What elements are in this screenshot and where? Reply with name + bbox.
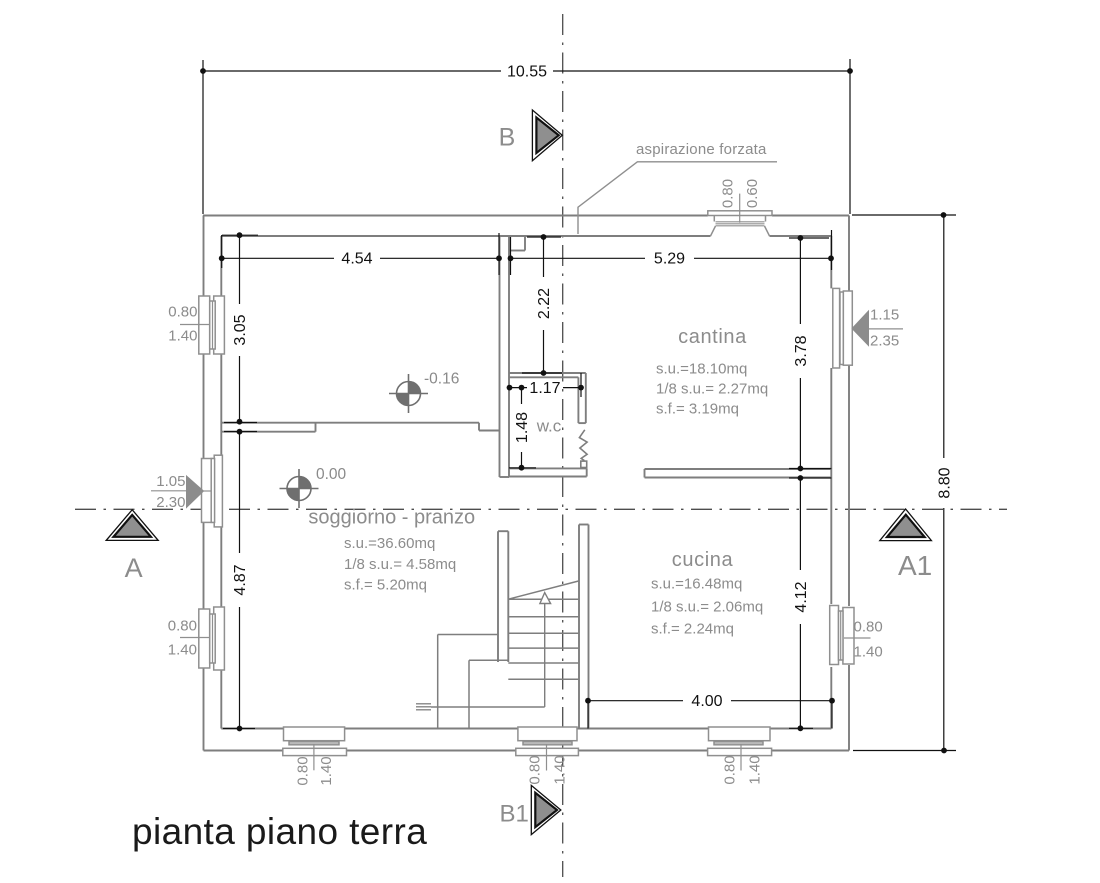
- svg-text:1.40: 1.40: [747, 755, 764, 784]
- svg-text:cucina: cucina: [672, 549, 734, 571]
- svg-text:10.55: 10.55: [507, 63, 547, 80]
- svg-text:4.00: 4.00: [691, 693, 722, 710]
- svg-text:1/8 s.u.= 2.27mq: 1/8 s.u.= 2.27mq: [656, 381, 768, 398]
- svg-text:0.80: 0.80: [168, 304, 197, 321]
- svg-text:4.12: 4.12: [793, 581, 810, 612]
- svg-text:0.80: 0.80: [720, 179, 737, 208]
- svg-text:1.40: 1.40: [168, 642, 197, 659]
- svg-text:soggiorno - pranzo: soggiorno - pranzo: [308, 507, 475, 529]
- svg-text:A1: A1: [898, 550, 932, 581]
- svg-text:B: B: [499, 124, 516, 152]
- svg-text:s.u.=16.48mq: s.u.=16.48mq: [651, 576, 742, 593]
- svg-text:B1: B1: [500, 801, 529, 828]
- svg-text:4.54: 4.54: [341, 251, 372, 268]
- svg-text:s.f.= 2.24mq: s.f.= 2.24mq: [651, 621, 734, 638]
- svg-text:5.29: 5.29: [654, 251, 685, 268]
- svg-text:A: A: [125, 553, 143, 583]
- svg-text:0.80: 0.80: [527, 755, 544, 784]
- svg-text:1/8 s.u.= 2.06mq: 1/8 s.u.= 2.06mq: [651, 599, 763, 616]
- svg-text:3.05: 3.05: [232, 314, 249, 345]
- svg-text:0.80: 0.80: [854, 619, 883, 636]
- svg-text:1.15: 1.15: [870, 307, 899, 324]
- svg-text:0.60: 0.60: [744, 179, 761, 208]
- svg-text:aspirazione forzata: aspirazione forzata: [636, 141, 767, 158]
- svg-text:2.35: 2.35: [870, 333, 899, 350]
- svg-text:1.40: 1.40: [854, 644, 883, 661]
- svg-text:-0.16: -0.16: [424, 371, 459, 388]
- svg-text:s.f.= 3.19mq: s.f.= 3.19mq: [656, 401, 739, 418]
- svg-text:1.40: 1.40: [168, 328, 197, 345]
- svg-text:1.17: 1.17: [529, 380, 560, 397]
- svg-text:w.c: w.c: [536, 416, 562, 435]
- svg-text:0.80: 0.80: [168, 618, 197, 635]
- svg-text:2.22: 2.22: [536, 288, 553, 319]
- svg-text:1.40: 1.40: [318, 756, 335, 785]
- svg-text:1.05: 1.05: [156, 473, 185, 490]
- svg-text:s.u.=36.60mq: s.u.=36.60mq: [344, 535, 435, 552]
- svg-text:pianta piano terra: pianta piano terra: [132, 811, 427, 852]
- svg-text:0.80: 0.80: [295, 756, 312, 785]
- svg-text:s.f.= 5.20mq: s.f.= 5.20mq: [344, 577, 427, 594]
- svg-text:4.87: 4.87: [232, 564, 249, 595]
- svg-text:cantina: cantina: [678, 326, 747, 348]
- svg-text:0.80: 0.80: [722, 755, 739, 784]
- svg-text:s.u.=18.10mq: s.u.=18.10mq: [656, 361, 747, 378]
- svg-text:2.30: 2.30: [156, 494, 185, 511]
- svg-text:0.00: 0.00: [316, 466, 347, 483]
- svg-text:1/8 s.u.= 4.58mq: 1/8 s.u.= 4.58mq: [344, 556, 456, 573]
- svg-text:3.78: 3.78: [793, 335, 810, 366]
- svg-text:1.48: 1.48: [514, 412, 531, 443]
- svg-text:8.80: 8.80: [937, 467, 954, 498]
- svg-text:1.40: 1.40: [552, 755, 569, 784]
